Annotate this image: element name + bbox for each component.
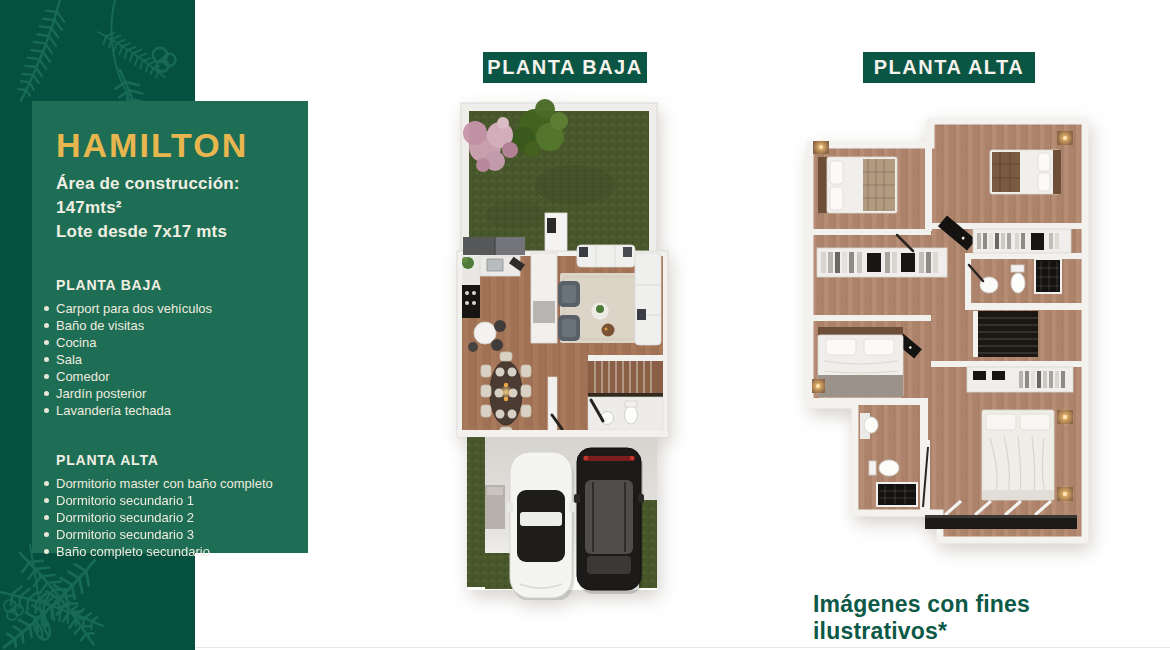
feature-item: Comedor (56, 368, 288, 385)
feature-item: Dormitorio secundario 1 (56, 492, 288, 509)
floorplan-upper-floor-illustration (805, 115, 1090, 580)
feature-label: Dormitorio secundario 3 (56, 527, 194, 542)
feature-item: Baño de visitas (56, 317, 288, 334)
bullet-dot-icon (44, 323, 49, 328)
feature-item: Lavandería techada (56, 402, 288, 419)
feature-label: Sala (56, 352, 82, 367)
feature-item: Sala (56, 351, 288, 368)
floorplan-ground-floor-illustration (455, 95, 670, 600)
feature-label: Jardín posterior (56, 386, 146, 401)
feature-label: Carport para dos vehículos (56, 301, 212, 316)
planta-baja-feature-list: Carport para dos vehículos Baño de visit… (56, 300, 288, 419)
feature-item: Dormitorio secundario 2 (56, 509, 288, 526)
bullet-dot-icon (44, 306, 49, 311)
bottom-divider-line (195, 647, 1170, 648)
bullet-dot-icon (44, 374, 49, 379)
bullet-dot-icon (44, 532, 49, 537)
bullet-dot-icon (44, 391, 49, 396)
bullet-dot-icon (44, 340, 49, 345)
bullet-dot-icon (44, 549, 49, 554)
planta-alta-feature-list: Dormitorio master con baño completo Dorm… (56, 475, 288, 560)
feature-label: Baño completo secundario (56, 544, 210, 559)
model-title: HAMILTON (56, 127, 288, 163)
feature-label: Baño de visitas (56, 318, 144, 333)
planta-baja-plan-title: PLANTA BAJA (483, 52, 647, 83)
feature-label: Lavandería techada (56, 403, 171, 418)
planta-alta-heading: PLANTA ALTA (56, 452, 288, 468)
feature-label: Cocina (56, 335, 96, 350)
model-info-card: HAMILTON Área de construcción: 147mts² L… (32, 101, 308, 553)
bullet-dot-icon (44, 357, 49, 362)
disclaimer-text: Imágenes con fines ilustrativos* (813, 591, 1170, 645)
feature-item: Dormitorio secundario 3 (56, 526, 288, 543)
feature-item: Cocina (56, 334, 288, 351)
feature-item: Baño completo secundario (56, 543, 288, 560)
bullet-dot-icon (44, 498, 49, 503)
brochure-page: HAMILTON Área de construcción: 147mts² L… (0, 0, 1170, 650)
bullet-dot-icon (44, 515, 49, 520)
construction-area-text: Área de construcción: 147mts² (56, 172, 288, 220)
lot-size-text: Lote desde 7x17 mts (56, 220, 288, 244)
planta-alta-plan-title: PLANTA ALTA (863, 52, 1035, 83)
model-specs: Área de construcción: 147mts² Lote desde… (56, 172, 288, 244)
feature-label: Comedor (56, 369, 109, 384)
planta-baja-heading: PLANTA BAJA (56, 277, 288, 293)
feature-item: Dormitorio master con baño completo (56, 475, 288, 492)
bullet-dot-icon (44, 481, 49, 486)
feature-label: Dormitorio master con baño completo (56, 476, 273, 491)
feature-item: Jardín posterior (56, 385, 288, 402)
feature-label: Dormitorio secundario 2 (56, 510, 194, 525)
feature-label: Dormitorio secundario 1 (56, 493, 194, 508)
bullet-dot-icon (44, 408, 49, 413)
feature-item: Carport para dos vehículos (56, 300, 288, 317)
